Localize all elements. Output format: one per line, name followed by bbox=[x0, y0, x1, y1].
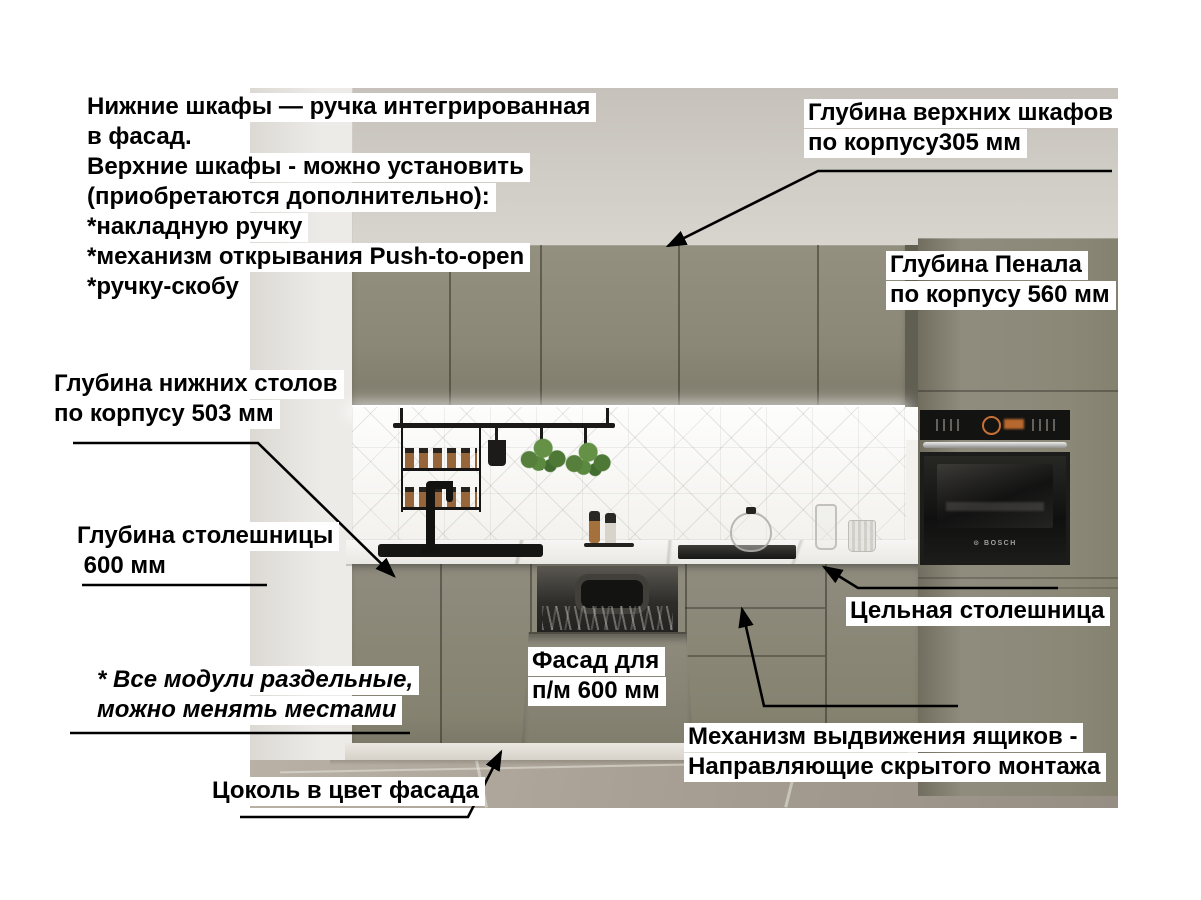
tall-cabinet-drawer-gap bbox=[918, 577, 1118, 579]
dishwasher-rack bbox=[542, 606, 673, 630]
annotation-line: Глубина столешницы bbox=[73, 522, 339, 551]
oven-panel-icons bbox=[936, 419, 962, 431]
tall-cabinet-drawer-gap bbox=[918, 587, 1118, 589]
annotation-upper-cabinet-depth: Глубина верхних шкафов по корпусу305 мм bbox=[804, 99, 1119, 159]
annotation-line: Цоколь в цвет фасада bbox=[208, 777, 485, 806]
cabinet-door-gap bbox=[440, 564, 442, 743]
annotation-handles-note: Нижние шкафы — ручка интегрированная в ф… bbox=[83, 93, 596, 303]
spice-jars-row bbox=[405, 490, 477, 507]
drawer-gap bbox=[685, 607, 825, 609]
cabinet-door-gap bbox=[817, 245, 819, 407]
faucet-neck bbox=[426, 483, 435, 551]
oven-control-panel bbox=[920, 410, 1070, 440]
annotation-line: Цельная столешница bbox=[846, 597, 1110, 626]
spice-rack-shelf bbox=[401, 468, 481, 471]
oven-door: ⊙ BOSCH bbox=[920, 452, 1070, 565]
annotation-line: можно менять местами bbox=[93, 696, 402, 725]
annotation-line: (приобретаются дополнительно): bbox=[83, 183, 496, 212]
annotated-kitchen-diagram: ⊙ BOSCH bbox=[0, 0, 1201, 900]
drawer-gap bbox=[685, 655, 825, 657]
annotation-drawer-mechanism: Механизм выдвижения ящиков - Направляющи… bbox=[684, 723, 1106, 783]
annotation-line: Направляющие скрытого монтажа bbox=[684, 753, 1106, 782]
pepper-grinder bbox=[589, 511, 600, 543]
ribbed-cup bbox=[848, 520, 876, 552]
annotation-line: п/м 600 мм bbox=[528, 677, 666, 706]
cabinet-door-gap bbox=[678, 245, 680, 407]
plant-leaves bbox=[558, 440, 616, 478]
annotation-line: по корпусу 503 мм bbox=[50, 400, 280, 429]
oven-handle bbox=[923, 442, 1067, 448]
annotation-line: Нижние шкафы — ручка интегрированная bbox=[83, 93, 596, 122]
annotation-solid-countertop: Цельная столешница bbox=[846, 597, 1110, 627]
annotation-line: 600 мм bbox=[73, 552, 172, 581]
annotation-line: Фасад для bbox=[528, 647, 665, 676]
cabinet-door-gap bbox=[825, 564, 827, 743]
spice-rack-shelf bbox=[401, 507, 481, 510]
carafe bbox=[815, 504, 837, 550]
dishwasher-interior bbox=[537, 566, 678, 632]
faucet-base bbox=[421, 547, 440, 554]
annotation-line: по корпусу 560 мм bbox=[886, 281, 1116, 310]
tall-cabinet-gap bbox=[918, 390, 1118, 392]
annotation-line: Глубина нижних столов bbox=[50, 370, 344, 399]
grinder-tray bbox=[584, 543, 634, 547]
annotation-line: Глубина Пенала bbox=[886, 251, 1088, 280]
annotation-line: Верхние шкафы - можно установить bbox=[83, 153, 530, 182]
annotation-line: в фасад. bbox=[83, 123, 198, 152]
annotation-line: по корпусу305 мм bbox=[804, 129, 1027, 158]
annotation-modules-note: * Все модули раздельные, можно менять ме… bbox=[93, 666, 419, 726]
annotation-line: *накладную ручку bbox=[83, 213, 308, 242]
oven-display bbox=[1004, 419, 1024, 429]
spice-rack bbox=[401, 428, 481, 512]
faucet-spout bbox=[446, 481, 453, 502]
annotation-base-cabinet-depth: Глубина нижних столов по корпусу 503 мм bbox=[50, 370, 344, 430]
annotation-plinth: Цоколь в цвет фасада bbox=[208, 777, 485, 807]
spice-jars-row bbox=[405, 451, 477, 468]
annotation-line: Глубина верхних шкафов bbox=[804, 99, 1119, 128]
oven-dial bbox=[982, 416, 1001, 435]
oven-panel-icons bbox=[1032, 419, 1058, 431]
annotation-countertop-depth: Глубина столешницы 600 мм bbox=[73, 522, 339, 582]
oven-reflection bbox=[946, 502, 1044, 511]
annotation-tall-cabinet-depth: Глубина Пенала по корпусу 560 мм bbox=[886, 251, 1116, 311]
sink bbox=[378, 544, 543, 557]
salt-grinder bbox=[605, 513, 616, 545]
annotation-line: * Все модули раздельные, bbox=[93, 666, 419, 695]
utensil-cup bbox=[488, 440, 506, 466]
annotation-dishwasher-facade: Фасад для п/м 600 мм bbox=[528, 647, 666, 707]
rail-hook bbox=[400, 408, 403, 424]
plant-pot bbox=[522, 470, 562, 522]
oven-brand-text: BOSCH bbox=[984, 540, 1017, 547]
annotation-line: *механизм открывания Push-to-open bbox=[83, 243, 530, 272]
oven: ⊙ BOSCH bbox=[920, 410, 1070, 565]
teapot bbox=[730, 512, 772, 552]
rail-hook bbox=[606, 408, 609, 424]
annotation-line: Механизм выдвижения ящиков - bbox=[684, 723, 1083, 752]
oven-brand-logo: ⊙ BOSCH bbox=[924, 539, 1066, 547]
oven-window bbox=[937, 464, 1053, 528]
annotation-line: *ручку-скобу bbox=[83, 273, 245, 302]
